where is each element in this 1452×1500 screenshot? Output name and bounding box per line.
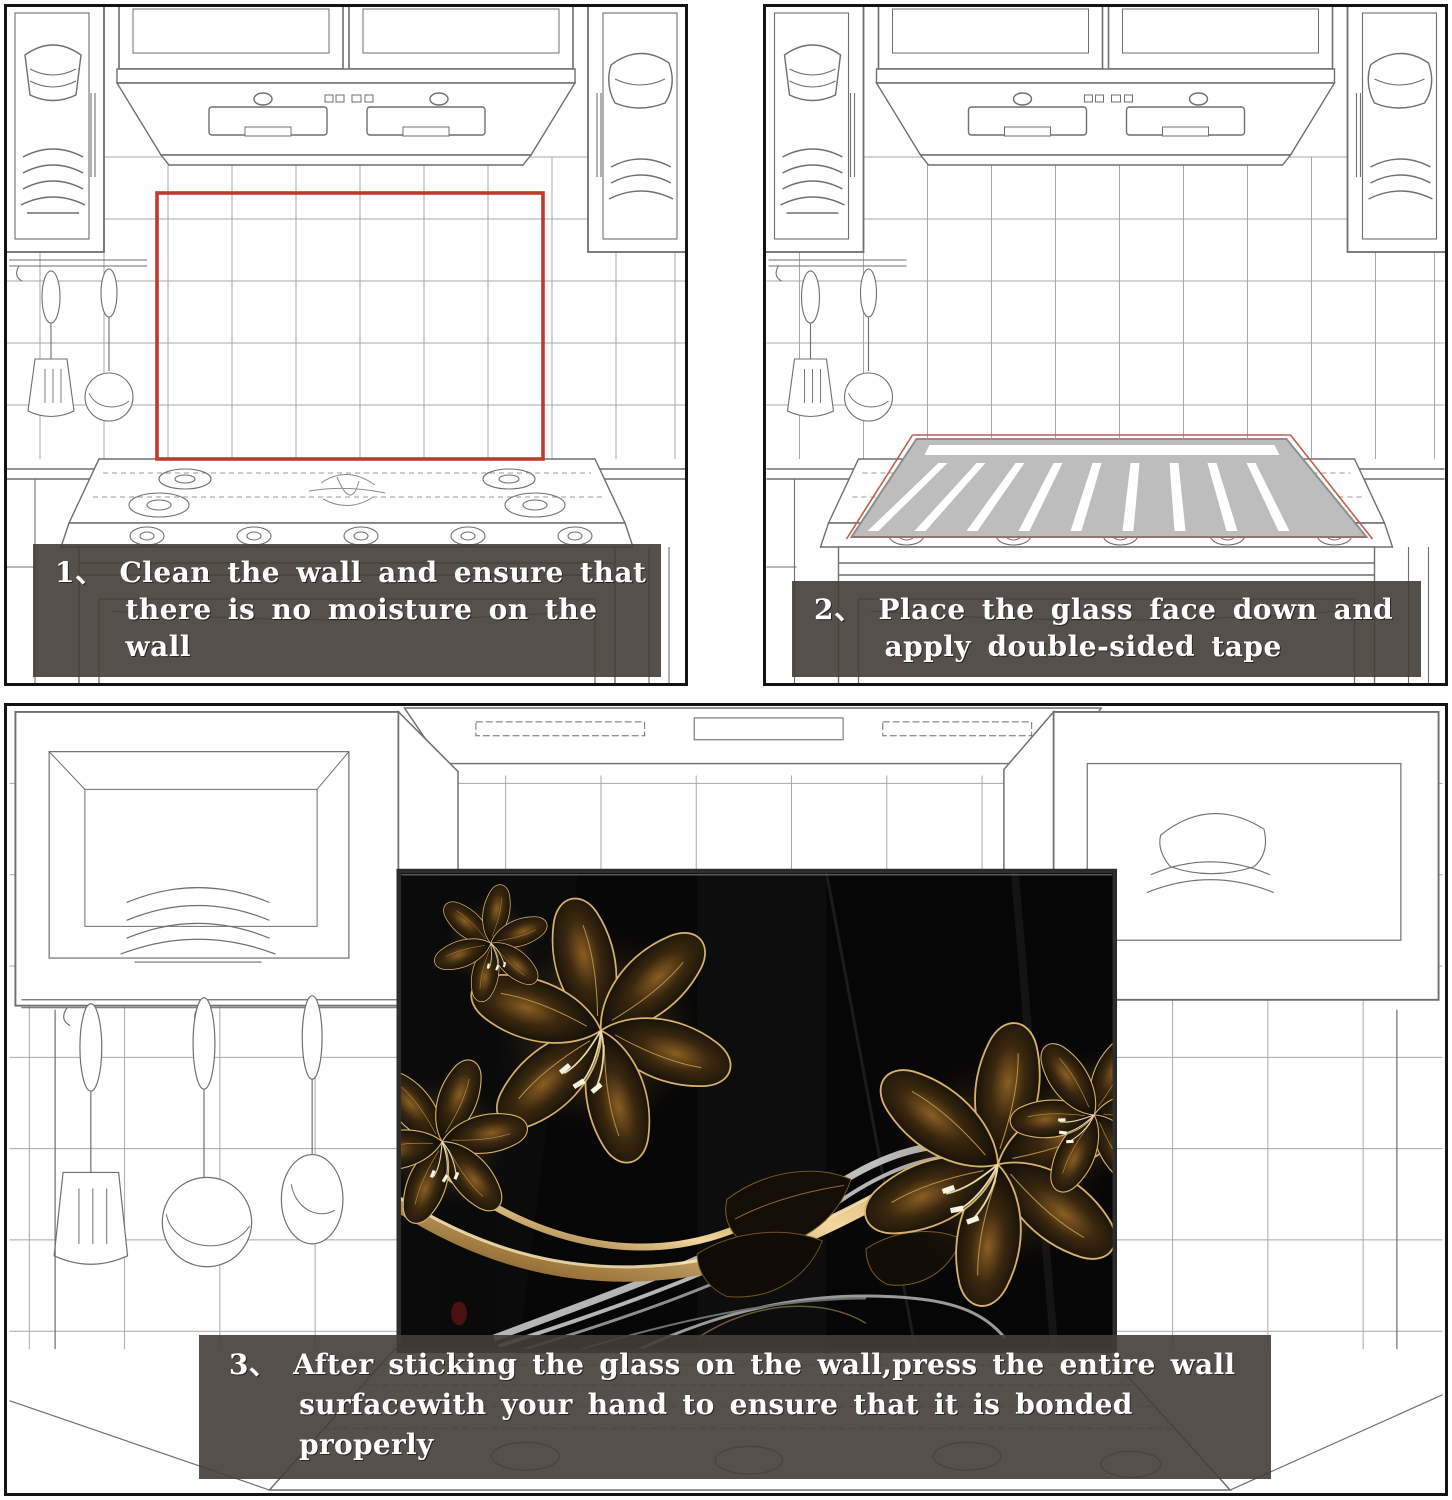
step-1-panel: 1、 Clean the wall and ensure that there … bbox=[4, 4, 688, 686]
step-2-panel: 2、 Place the glass face down and apply d… bbox=[763, 4, 1448, 686]
glass-face-down-with-tape bbox=[847, 435, 1373, 539]
backsplash-area-red-outline bbox=[157, 193, 543, 459]
step-1-caption: 1、 Clean the wall and ensure that there … bbox=[33, 544, 661, 677]
step-3-text-line-2: surfacewith your hand to ensure that it … bbox=[293, 1385, 1261, 1465]
glass-reflection-dot bbox=[451, 1301, 467, 1325]
step-1-number: 1、 bbox=[55, 554, 103, 591]
left-upper-cabinet bbox=[15, 712, 458, 1026]
step-3-caption: 3、 After sticking the glass on the wall,… bbox=[199, 1335, 1271, 1479]
step-2-text-line-1: Place the glass face down and bbox=[878, 591, 1413, 628]
step-3-text-line-1: After sticking the glass on the wall,pre… bbox=[293, 1345, 1261, 1385]
step-3-panel: 3、 After sticking the glass on the wall,… bbox=[4, 703, 1448, 1496]
step-2-number: 2、 bbox=[814, 591, 862, 628]
backsplash-glass-artwork bbox=[321, 859, 1210, 1354]
range-hood bbox=[404, 708, 1101, 764]
installation-instruction-sheet: { "steps": [ { "number": "1、", "lines": … bbox=[0, 0, 1452, 1500]
step-2-caption: 2、 Place the glass face down and apply d… bbox=[792, 581, 1421, 677]
hanging-utensils bbox=[21, 996, 400, 1267]
step-1-text-line-1: Clean the wall and ensure that bbox=[119, 554, 653, 591]
step-3-number: 3、 bbox=[229, 1345, 277, 1385]
step-1-text-line-2: there is no moisture on the wall bbox=[119, 591, 653, 665]
step-2-text-line-2: apply double-sided tape bbox=[878, 628, 1413, 665]
